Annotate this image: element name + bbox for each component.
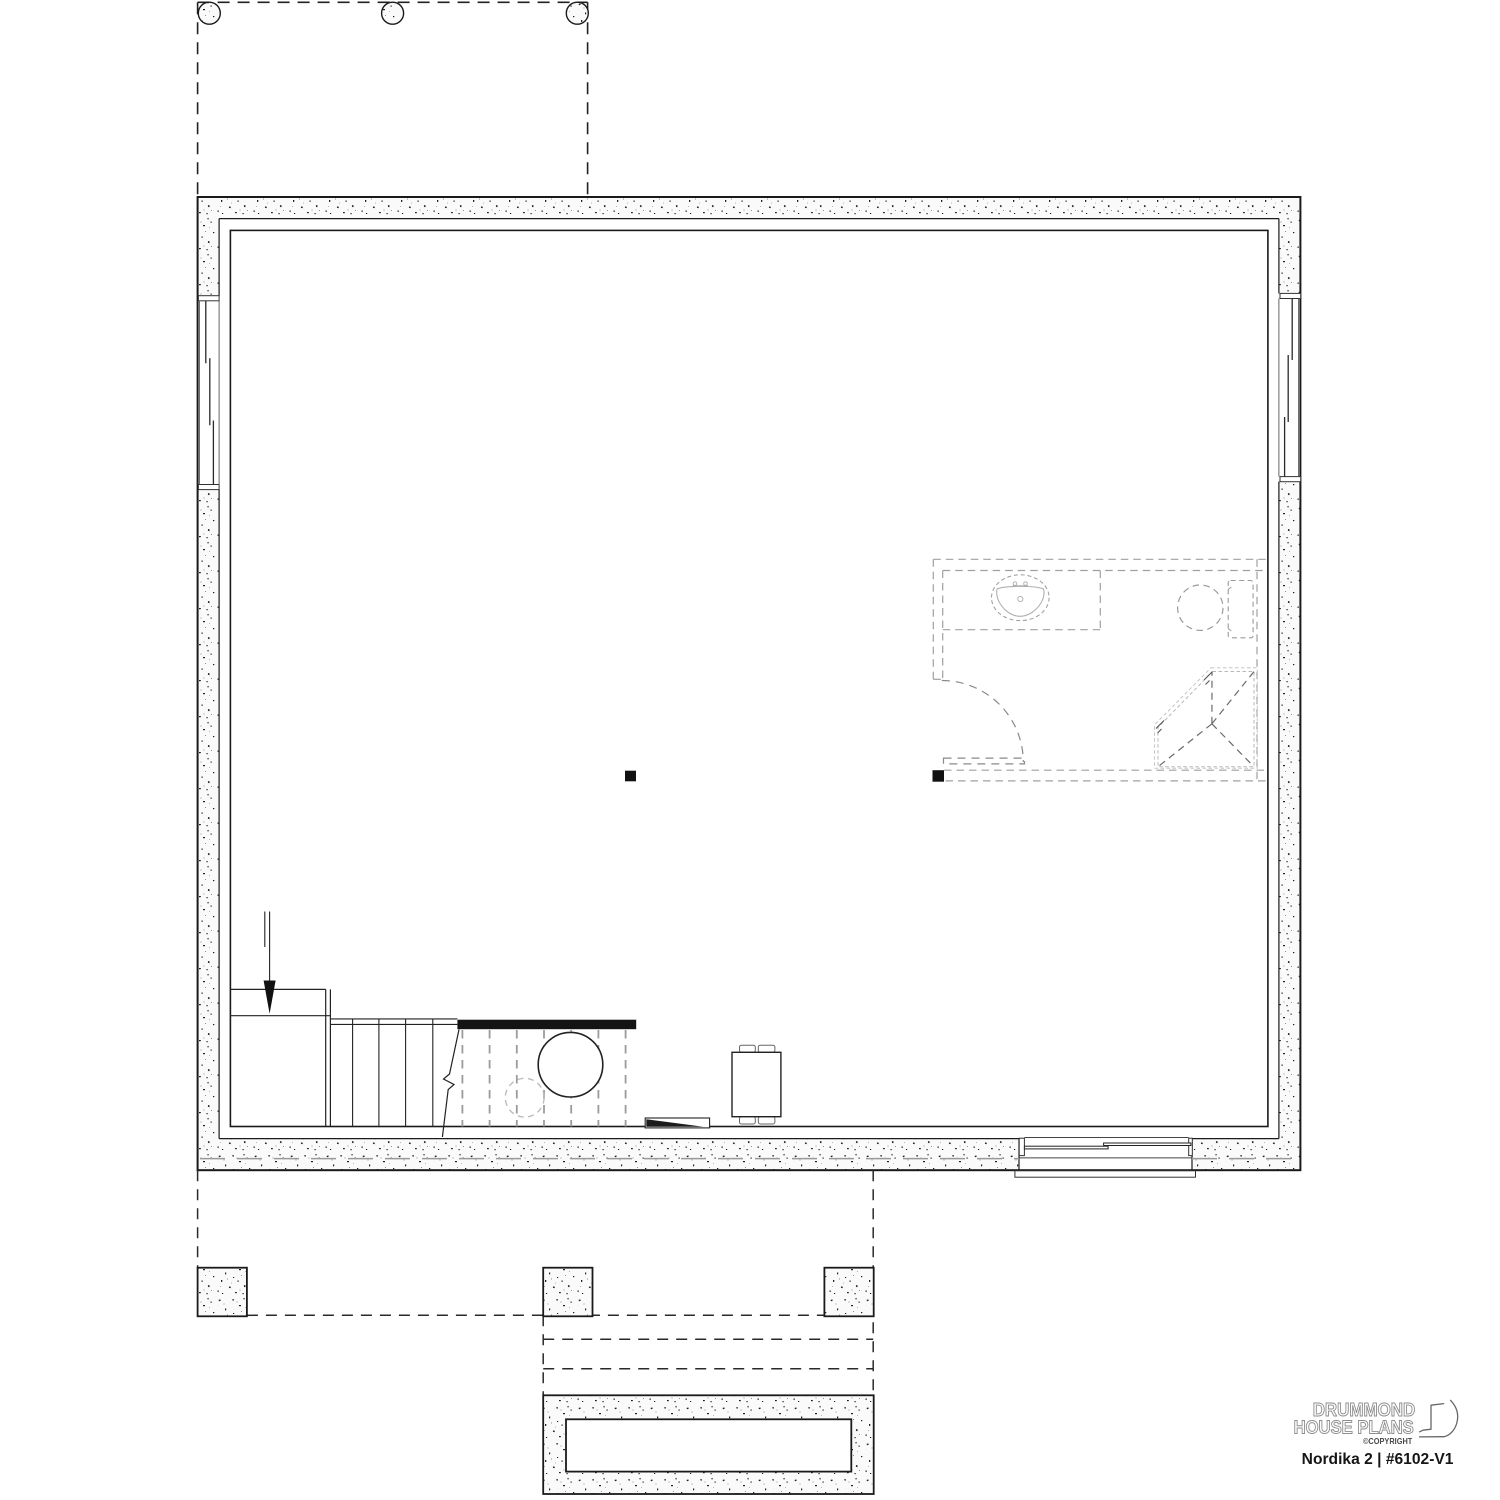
svg-text:©COPYRIGHT: ©COPYRIGHT — [1363, 1436, 1412, 1446]
svg-text:Nordika 2 | #6102-V1: Nordika 2 | #6102-V1 — [1302, 1451, 1454, 1468]
svg-text:HOUSE PLANS: HOUSE PLANS — [1294, 1418, 1414, 1438]
